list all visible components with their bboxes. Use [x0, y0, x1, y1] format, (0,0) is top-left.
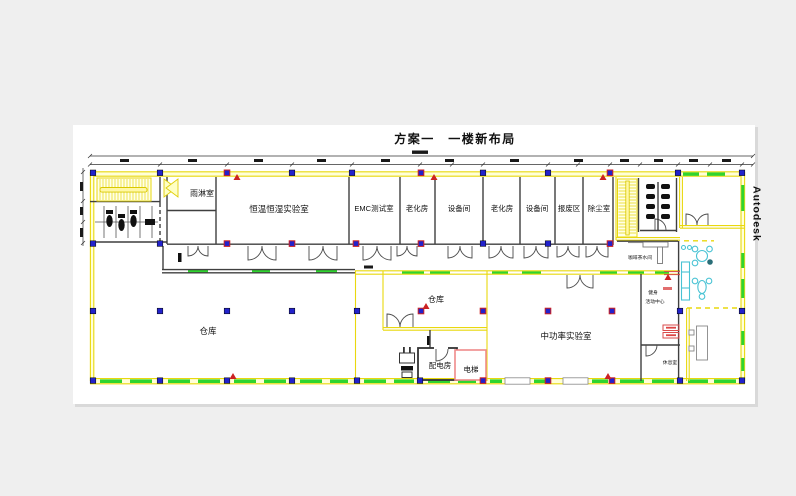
room-label-warehouse-big: 仓库: [199, 326, 217, 336]
rollup-door-sill: [505, 378, 530, 384]
cad-viewport: 方案一 一楼新布局 Autodesk: [0, 0, 796, 496]
room-label-scrap: 报废区: [558, 203, 581, 213]
staircase-right-icon: [618, 179, 638, 237]
rollup-door-sill: [563, 378, 588, 384]
room-label-emc: EMC测试室: [354, 203, 394, 213]
room-label-elevator: 电梯: [464, 364, 479, 374]
drawing-title: 方案一 一楼新布局: [394, 131, 516, 146]
floor-plan-drawing: 方案一 一楼新布局 Autodesk: [0, 0, 796, 496]
room-label-rest: 休息室: [663, 359, 678, 366]
room-label-dust: 除尘室: [588, 203, 611, 213]
room-label-fitness2: 活动中心: [645, 298, 664, 305]
room-label-equip1: 设备间: [448, 203, 471, 213]
staircase-left-icon: [97, 178, 151, 201]
room-label-aging2: 老化房: [491, 203, 514, 213]
room-label-fitness1: 健身: [648, 289, 658, 296]
room-label-humidity-lab: 恒温恒湿实验室: [249, 204, 309, 214]
room-label-warehouse-small: 仓库: [428, 294, 444, 304]
room-label-equip2: 设备间: [526, 203, 549, 213]
room-label-power-room: 配电房: [429, 360, 452, 370]
room-label-aging1: 老化房: [406, 203, 429, 213]
autodesk-watermark: Autodesk: [751, 186, 763, 242]
room-label-rain: 雨淋室: [190, 188, 214, 198]
room-label-coffee: 咖啡茶水间: [628, 254, 652, 261]
room-label-mid-power-lab: 中功率实验室: [540, 331, 592, 341]
